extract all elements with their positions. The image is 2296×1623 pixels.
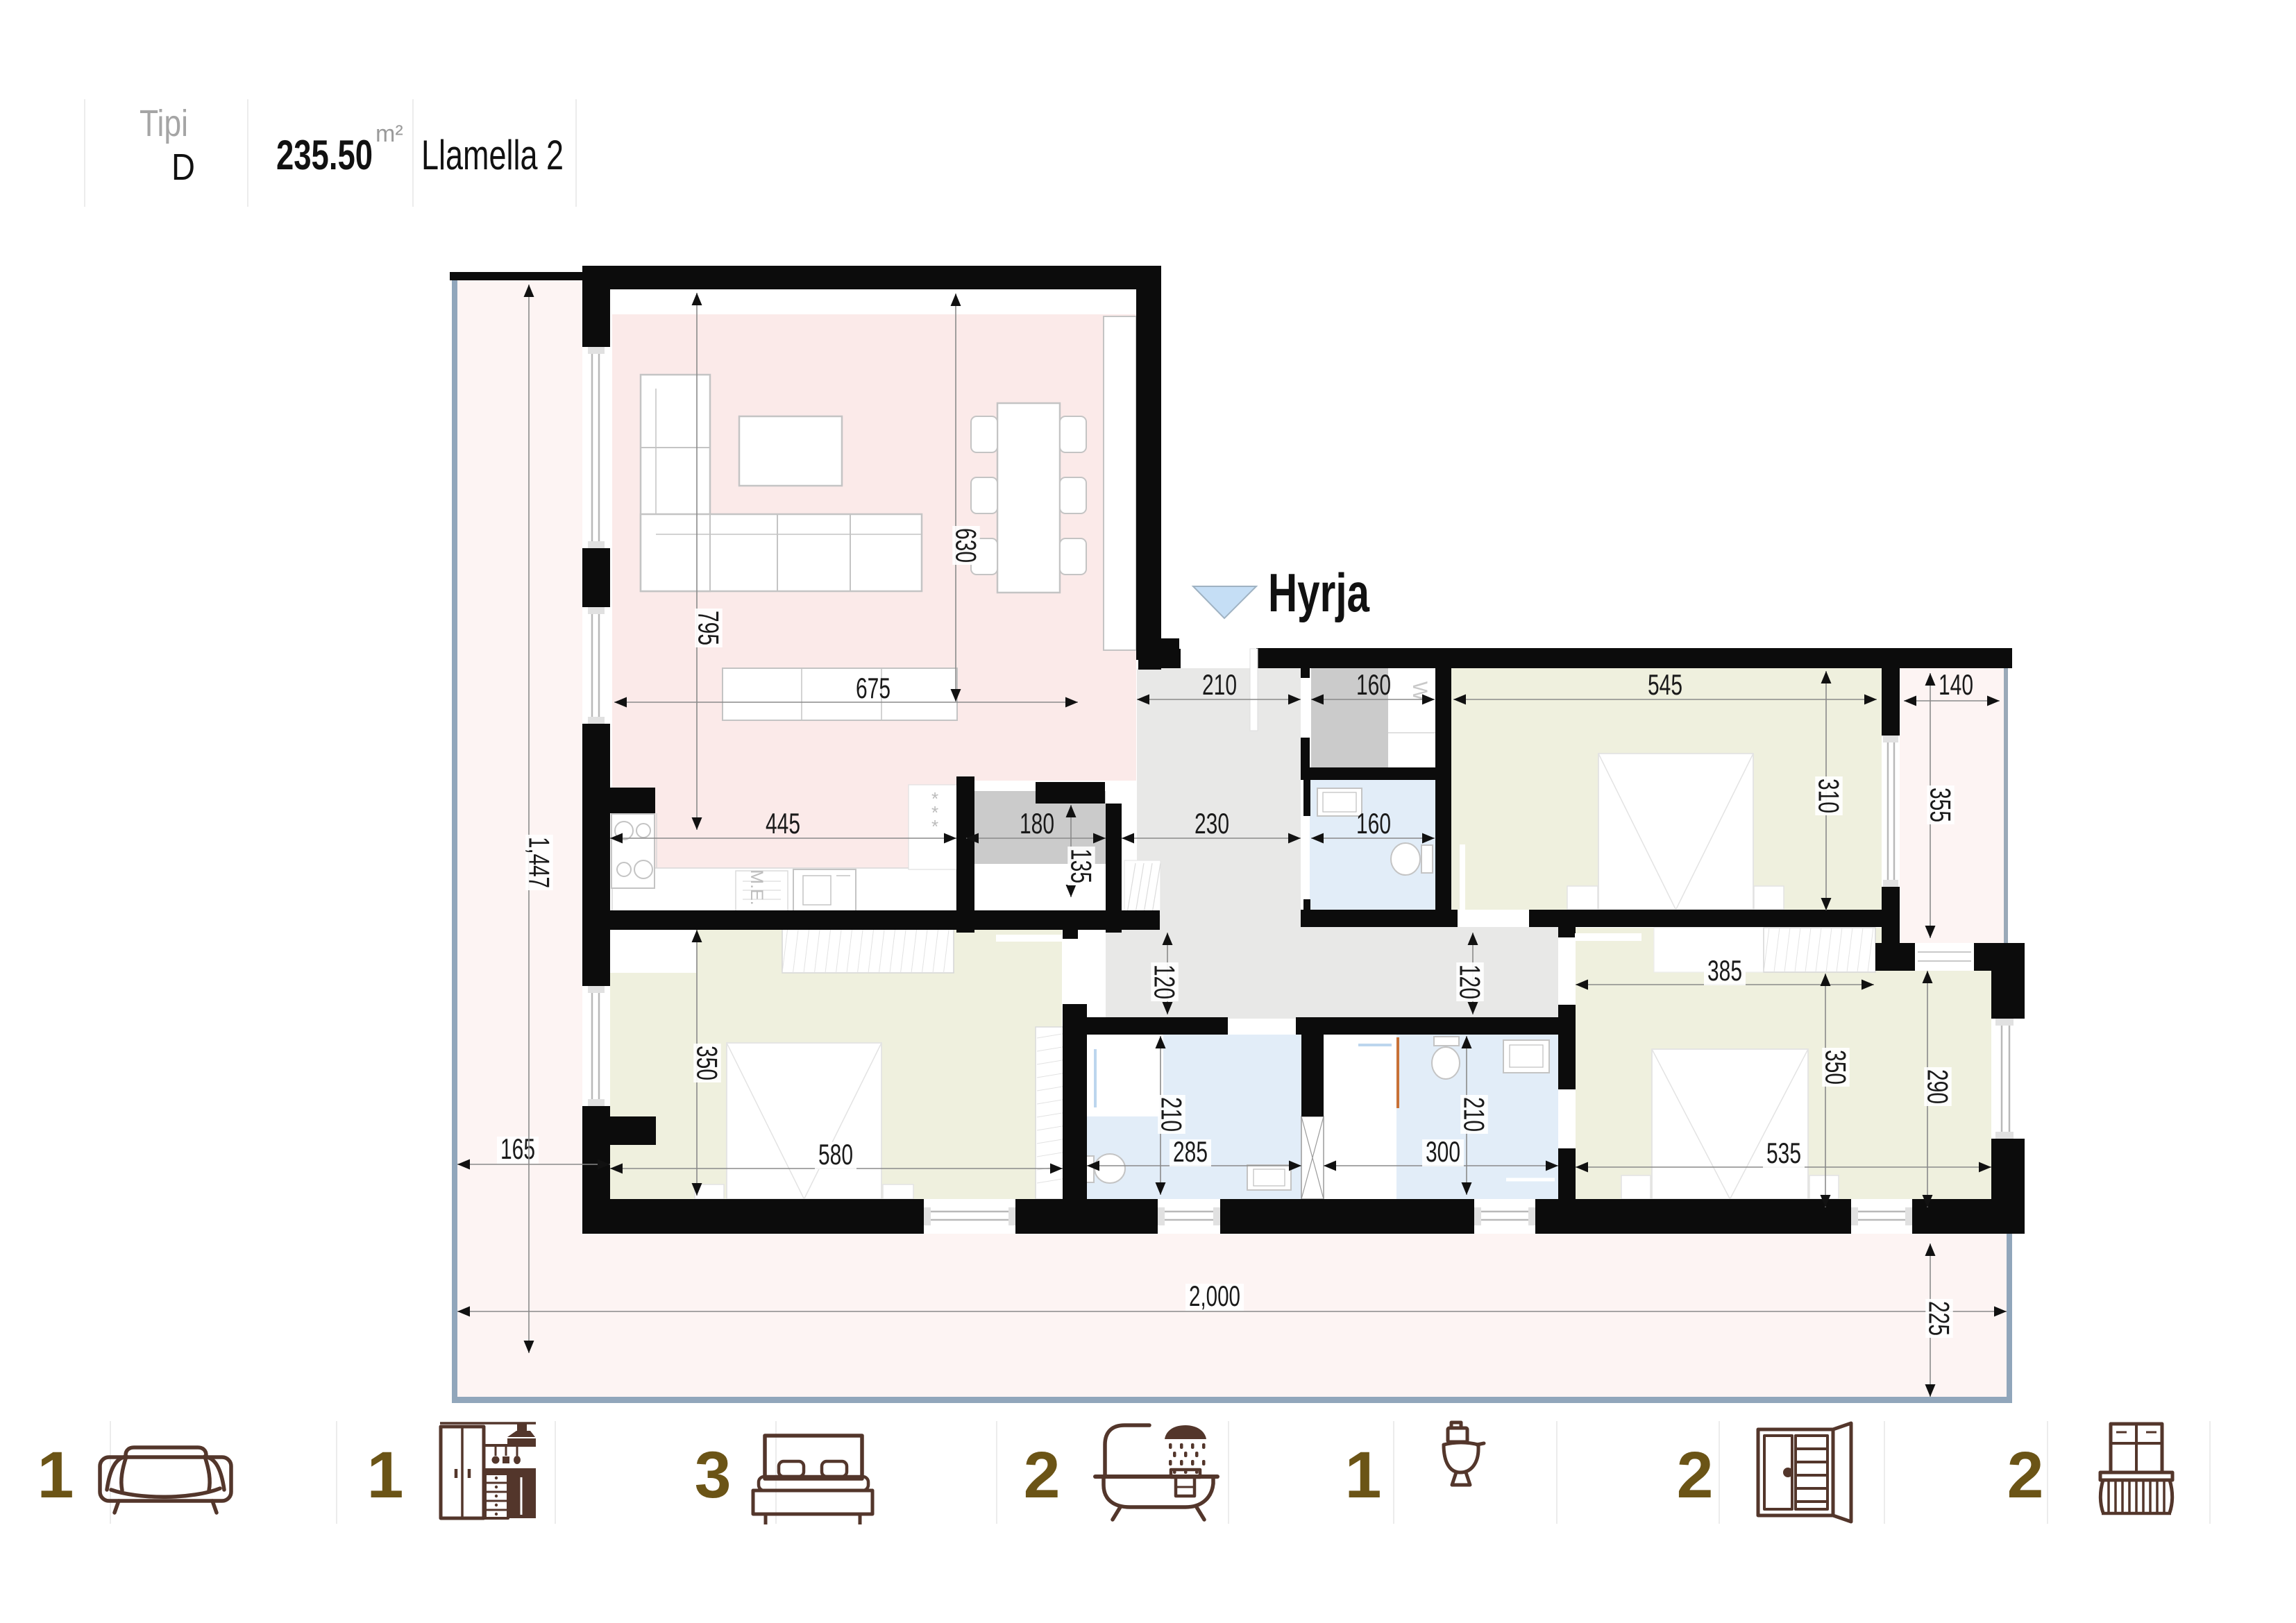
svg-text:m²: m² xyxy=(375,121,403,147)
svg-text:355: 355 xyxy=(1925,788,1957,822)
svg-text:225: 225 xyxy=(1923,1301,1956,1336)
svg-text:Llamella 2: Llamella 2 xyxy=(421,132,564,178)
svg-text:210: 210 xyxy=(1156,1097,1188,1132)
svg-text:300: 300 xyxy=(1426,1135,1460,1168)
svg-text:*: * xyxy=(931,816,938,837)
svg-text:2: 2 xyxy=(2007,1438,2044,1512)
svg-text:160: 160 xyxy=(1356,668,1391,701)
svg-text:350: 350 xyxy=(1820,1050,1852,1085)
svg-text:2: 2 xyxy=(1677,1438,1714,1512)
svg-text:230: 230 xyxy=(1195,807,1229,840)
svg-text:235.50: 235.50 xyxy=(276,132,373,178)
svg-text:350: 350 xyxy=(691,1046,724,1080)
svg-text:140: 140 xyxy=(1939,668,1973,701)
svg-text:630: 630 xyxy=(950,528,983,563)
svg-text:120: 120 xyxy=(1454,965,1487,999)
svg-text:160: 160 xyxy=(1356,807,1391,840)
svg-text:210: 210 xyxy=(1202,668,1237,701)
svg-text:545: 545 xyxy=(1648,668,1682,701)
svg-text:D: D xyxy=(171,146,195,188)
svg-text:120: 120 xyxy=(1149,965,1181,999)
svg-text:675: 675 xyxy=(856,672,890,704)
svg-text:3: 3 xyxy=(695,1438,732,1512)
svg-text:580: 580 xyxy=(818,1138,853,1171)
svg-text:285: 285 xyxy=(1173,1135,1208,1168)
svg-text:180: 180 xyxy=(1020,807,1054,840)
svg-text:1: 1 xyxy=(367,1438,404,1512)
svg-text:385: 385 xyxy=(1707,954,1742,987)
svg-text:795: 795 xyxy=(693,611,725,645)
svg-text:1,447: 1,447 xyxy=(523,837,556,888)
svg-text:2: 2 xyxy=(1024,1438,1061,1512)
svg-text:Tipi: Tipi xyxy=(140,103,188,144)
svg-text:310: 310 xyxy=(1813,779,1846,813)
svg-text:445: 445 xyxy=(766,807,800,840)
svg-text:135: 135 xyxy=(1065,849,1098,883)
svg-text:1: 1 xyxy=(37,1438,74,1512)
svg-text:210: 210 xyxy=(1458,1097,1491,1132)
svg-text:1: 1 xyxy=(1345,1438,1382,1512)
svg-text:165: 165 xyxy=(500,1132,535,1165)
svg-text:2,000: 2,000 xyxy=(1189,1280,1240,1312)
svg-text:290: 290 xyxy=(1922,1069,1955,1104)
svg-text:M.E.: M.E. xyxy=(747,869,766,905)
svg-text:Hyrja: Hyrja xyxy=(1268,562,1369,623)
svg-text:535: 535 xyxy=(1766,1137,1801,1169)
